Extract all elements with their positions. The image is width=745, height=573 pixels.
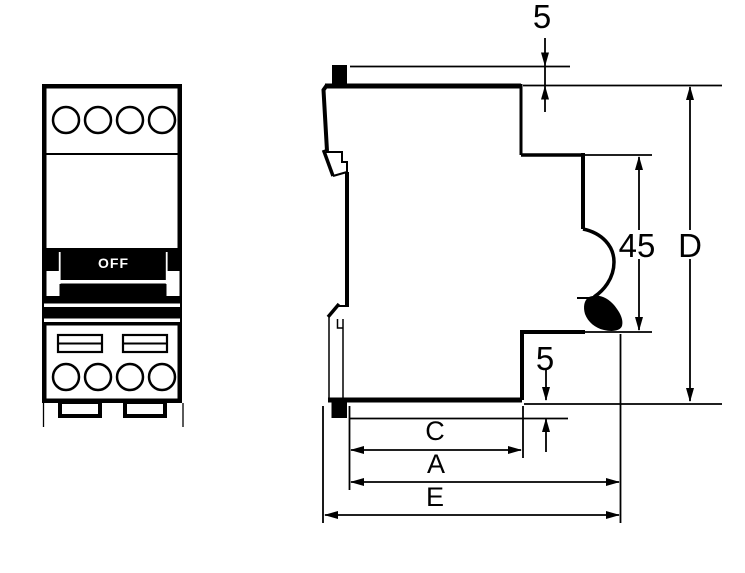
rocker-underline	[60, 280, 167, 284]
dim-label-5-bottom: 5	[515, 342, 575, 375]
dim-label-a: A	[406, 451, 466, 478]
din-hook-upper-barb	[324, 150, 334, 176]
din-hook-lower-barb	[328, 304, 339, 317]
top-tab	[332, 65, 347, 85]
dim-label-e: E	[405, 484, 465, 511]
foot	[125, 402, 165, 416]
panel-groove-1	[44, 304, 180, 308]
din-hook-upper-return	[333, 172, 347, 176]
side-view	[324, 65, 623, 418]
arrow-icon	[350, 478, 364, 486]
arrow-icon	[541, 53, 549, 67]
terminal-clamp-blob	[584, 296, 622, 331]
arrow-icon	[324, 511, 338, 519]
arrow-icon	[686, 388, 694, 402]
dim-label-5-top: 5	[512, 0, 572, 33]
din-clip-slider-notch	[338, 319, 344, 328]
mounting-feet	[60, 402, 165, 416]
back-face-upper	[324, 85, 328, 151]
dim-label-d: D	[660, 229, 720, 262]
arrow-icon	[508, 446, 522, 454]
dim-label-45: 45	[607, 229, 667, 262]
screw-icon	[85, 364, 111, 390]
arrow-icon	[635, 317, 643, 331]
recess-corner-left	[47, 271, 60, 296]
panel-groove-2	[44, 319, 180, 323]
screw-icon	[53, 107, 79, 133]
screw-icon	[149, 364, 175, 390]
screw-icon	[85, 107, 111, 133]
foot	[60, 402, 100, 416]
bottom-tab	[332, 402, 348, 418]
arrow-icon	[542, 387, 550, 401]
toggle-off-label: OFF	[52, 256, 175, 270]
arrow-icon	[635, 156, 643, 170]
recess-corner-right	[167, 271, 180, 296]
screw-icon	[53, 364, 79, 390]
arrow-icon	[606, 478, 620, 486]
arrow-icon	[350, 446, 364, 454]
din-hook-upper-step	[342, 151, 347, 174]
screw-icon	[117, 107, 143, 133]
arrow-icon	[606, 511, 620, 519]
arrow-icon	[686, 86, 694, 100]
screw-icon	[149, 107, 175, 133]
arrow-icon	[542, 418, 550, 432]
arrow-icon	[541, 86, 549, 100]
diagram-linework	[0, 0, 745, 573]
dim-label-c: C	[405, 418, 465, 445]
circuit-breaker-dimension-diagram: OFF 5 45 D 5 C A E	[0, 0, 745, 573]
screw-icon	[117, 364, 143, 390]
